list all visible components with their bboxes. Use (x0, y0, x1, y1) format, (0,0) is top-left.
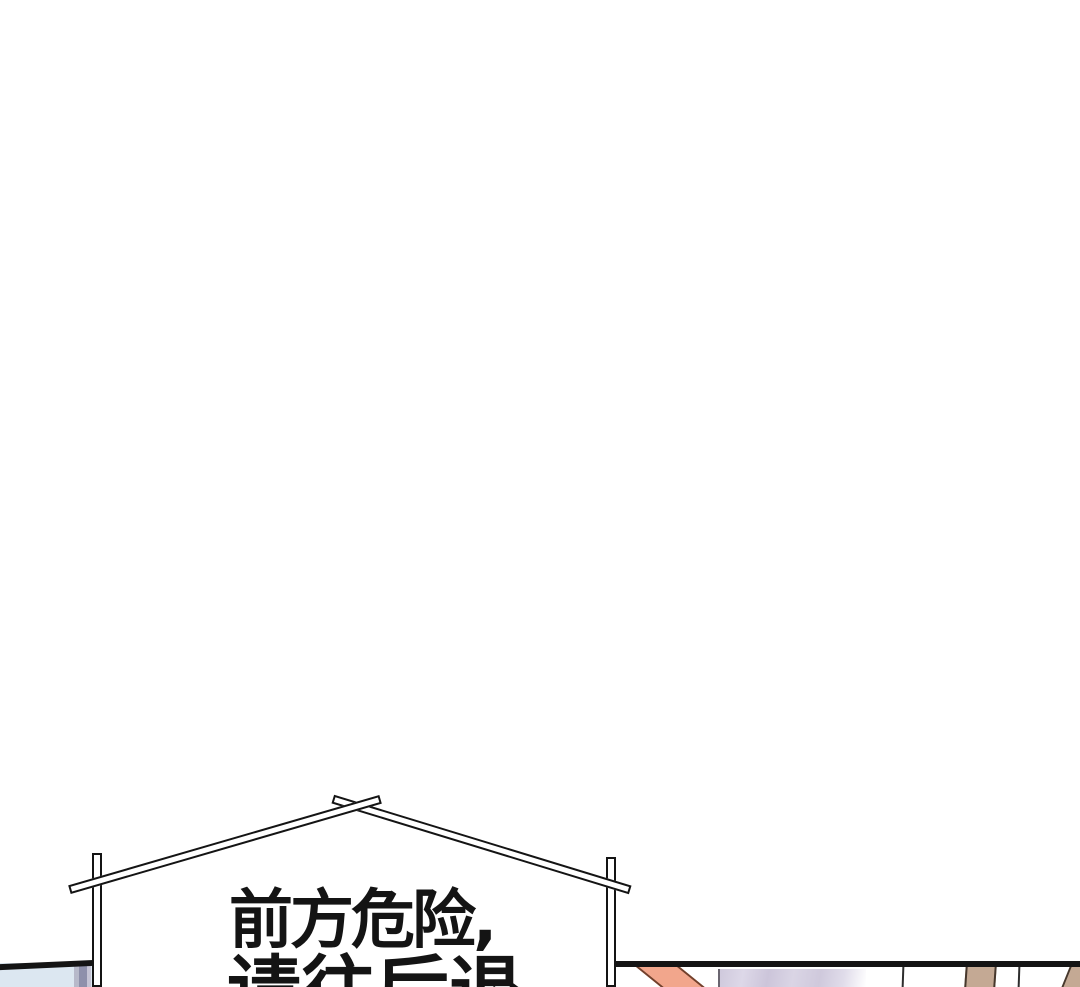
sign-text-line-2: 请往后退 (227, 954, 523, 987)
sign-post-right (606, 857, 616, 987)
comic-page: 前方危险, 请往后退 (0, 0, 1080, 987)
right-panel-top-border (612, 961, 1080, 967)
sign-text-line-1: 前方危险, (229, 889, 494, 953)
lavender-wall-block (718, 969, 866, 987)
sign-roof-beam-right (331, 795, 631, 895)
fence-line (1018, 967, 1021, 987)
wooden-post (964, 966, 996, 987)
sign-roof-beam-left (68, 795, 382, 894)
sign-post-left (92, 853, 102, 987)
diagonal-wood-beam (636, 967, 706, 987)
wooden-post-corner (1062, 966, 1080, 987)
curtain-fold (87, 963, 91, 987)
fence-line (902, 967, 905, 987)
curtain-fold (79, 963, 87, 987)
